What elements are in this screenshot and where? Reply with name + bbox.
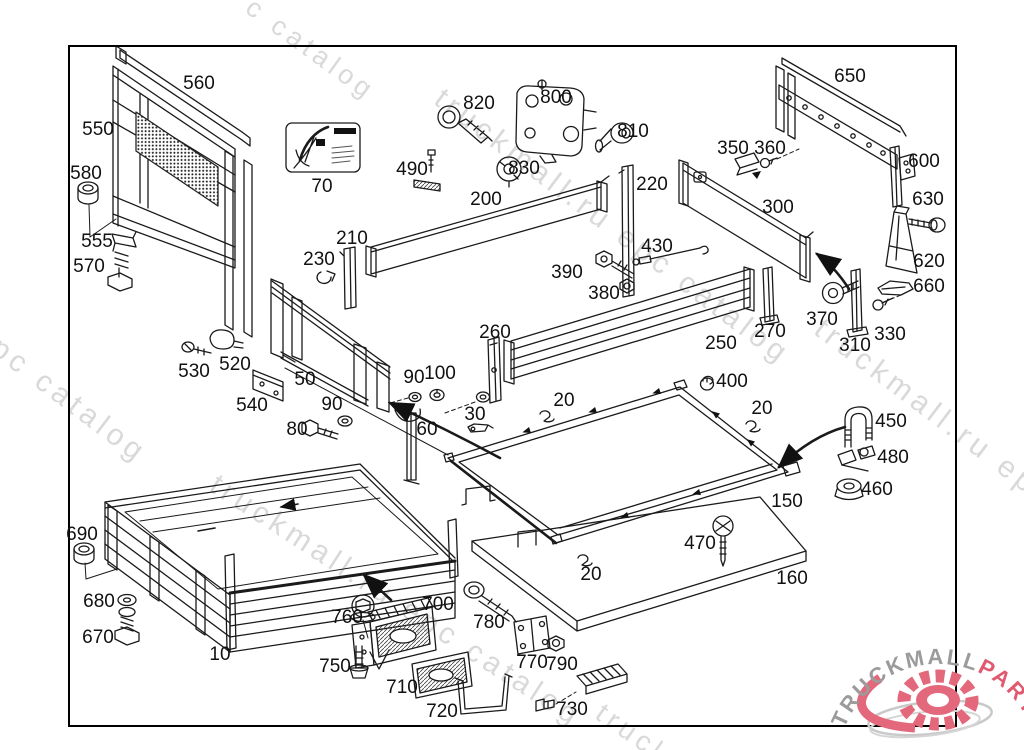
part-label-680[interactable]: 680 [83, 591, 115, 613]
callout-layer: 5605505805555707049082080081083020021023… [0, 0, 1024, 750]
part-label-100[interactable]: 100 [424, 363, 456, 385]
part-label-690[interactable]: 690 [66, 524, 98, 546]
part-label-160[interactable]: 160 [776, 568, 808, 590]
part-label-730[interactable]: 730 [556, 699, 588, 721]
part-label-430[interactable]: 430 [641, 236, 673, 258]
part-label-30[interactable]: 30 [464, 404, 485, 426]
part-label-310[interactable]: 310 [839, 335, 871, 357]
part-label-80[interactable]: 80 [286, 419, 307, 441]
part-label-820[interactable]: 820 [463, 93, 495, 115]
part-label-480[interactable]: 480 [877, 447, 909, 469]
part-label-490[interactable]: 490 [396, 159, 428, 181]
part-label-150[interactable]: 150 [771, 491, 803, 513]
part-label-600[interactable]: 600 [908, 151, 940, 173]
part-label-520[interactable]: 520 [219, 354, 251, 376]
part-label-670[interactable]: 670 [82, 627, 114, 649]
part-label-10[interactable]: 10 [209, 644, 230, 666]
part-label-400[interactable]: 400 [716, 371, 748, 393]
part-label-200[interactable]: 200 [470, 189, 502, 211]
part-label-260[interactable]: 260 [479, 322, 511, 344]
part-label-220[interactable]: 220 [636, 174, 668, 196]
part-label-750[interactable]: 750 [319, 656, 351, 678]
part-label-570[interactable]: 570 [73, 256, 105, 278]
part-label-50[interactable]: 50 [294, 369, 315, 391]
part-label-630[interactable]: 630 [912, 189, 944, 211]
part-label-620[interactable]: 620 [913, 251, 945, 273]
part-label-580[interactable]: 580 [70, 163, 102, 185]
part-label-540[interactable]: 540 [236, 395, 268, 417]
part-label-760[interactable]: 760 [331, 607, 363, 629]
part-label-720[interactable]: 720 [426, 701, 458, 723]
part-label-460[interactable]: 460 [861, 479, 893, 501]
part-label-555[interactable]: 555 [81, 231, 113, 253]
part-label-660[interactable]: 660 [913, 276, 945, 298]
part-label-530[interactable]: 530 [178, 361, 210, 383]
part-label-230[interactable]: 230 [303, 249, 335, 271]
part-label-650[interactable]: 650 [834, 66, 866, 88]
part-label-300[interactable]: 300 [762, 197, 794, 219]
part-label-270[interactable]: 270 [754, 321, 786, 343]
part-label-470[interactable]: 470 [684, 533, 716, 555]
part-label-560[interactable]: 560 [183, 73, 215, 95]
part-label-780[interactable]: 780 [473, 612, 505, 634]
part-label-350[interactable]: 350 [717, 138, 749, 160]
part-label-810[interactable]: 810 [617, 121, 649, 143]
part-label-250[interactable]: 250 [705, 333, 737, 355]
part-label-90[interactable]: 90 [321, 394, 342, 416]
part-label-20[interactable]: 20 [751, 398, 772, 420]
part-label-20[interactable]: 20 [580, 564, 601, 586]
part-label-710[interactable]: 710 [386, 677, 418, 699]
part-label-390[interactable]: 390 [551, 262, 583, 284]
part-label-370[interactable]: 370 [806, 309, 838, 331]
part-label-790[interactable]: 790 [546, 654, 578, 676]
part-label-800[interactable]: 800 [540, 87, 572, 109]
part-label-830[interactable]: 830 [508, 158, 540, 180]
part-label-330[interactable]: 330 [874, 324, 906, 346]
catalog-diagram-page: c catalogtruckmall.ru epc catalogll epc … [0, 0, 1024, 750]
part-label-380[interactable]: 380 [588, 283, 620, 305]
part-label-90[interactable]: 90 [403, 367, 424, 389]
part-label-770[interactable]: 770 [516, 652, 548, 674]
part-label-20[interactable]: 20 [553, 390, 574, 412]
part-label-70[interactable]: 70 [311, 176, 332, 198]
part-label-60[interactable]: 60 [416, 419, 437, 441]
part-label-210[interactable]: 210 [336, 228, 368, 250]
part-label-450[interactable]: 450 [875, 411, 907, 433]
part-label-550[interactable]: 550 [82, 119, 114, 141]
part-label-360[interactable]: 360 [754, 138, 786, 160]
part-label-700[interactable]: 700 [422, 594, 454, 616]
